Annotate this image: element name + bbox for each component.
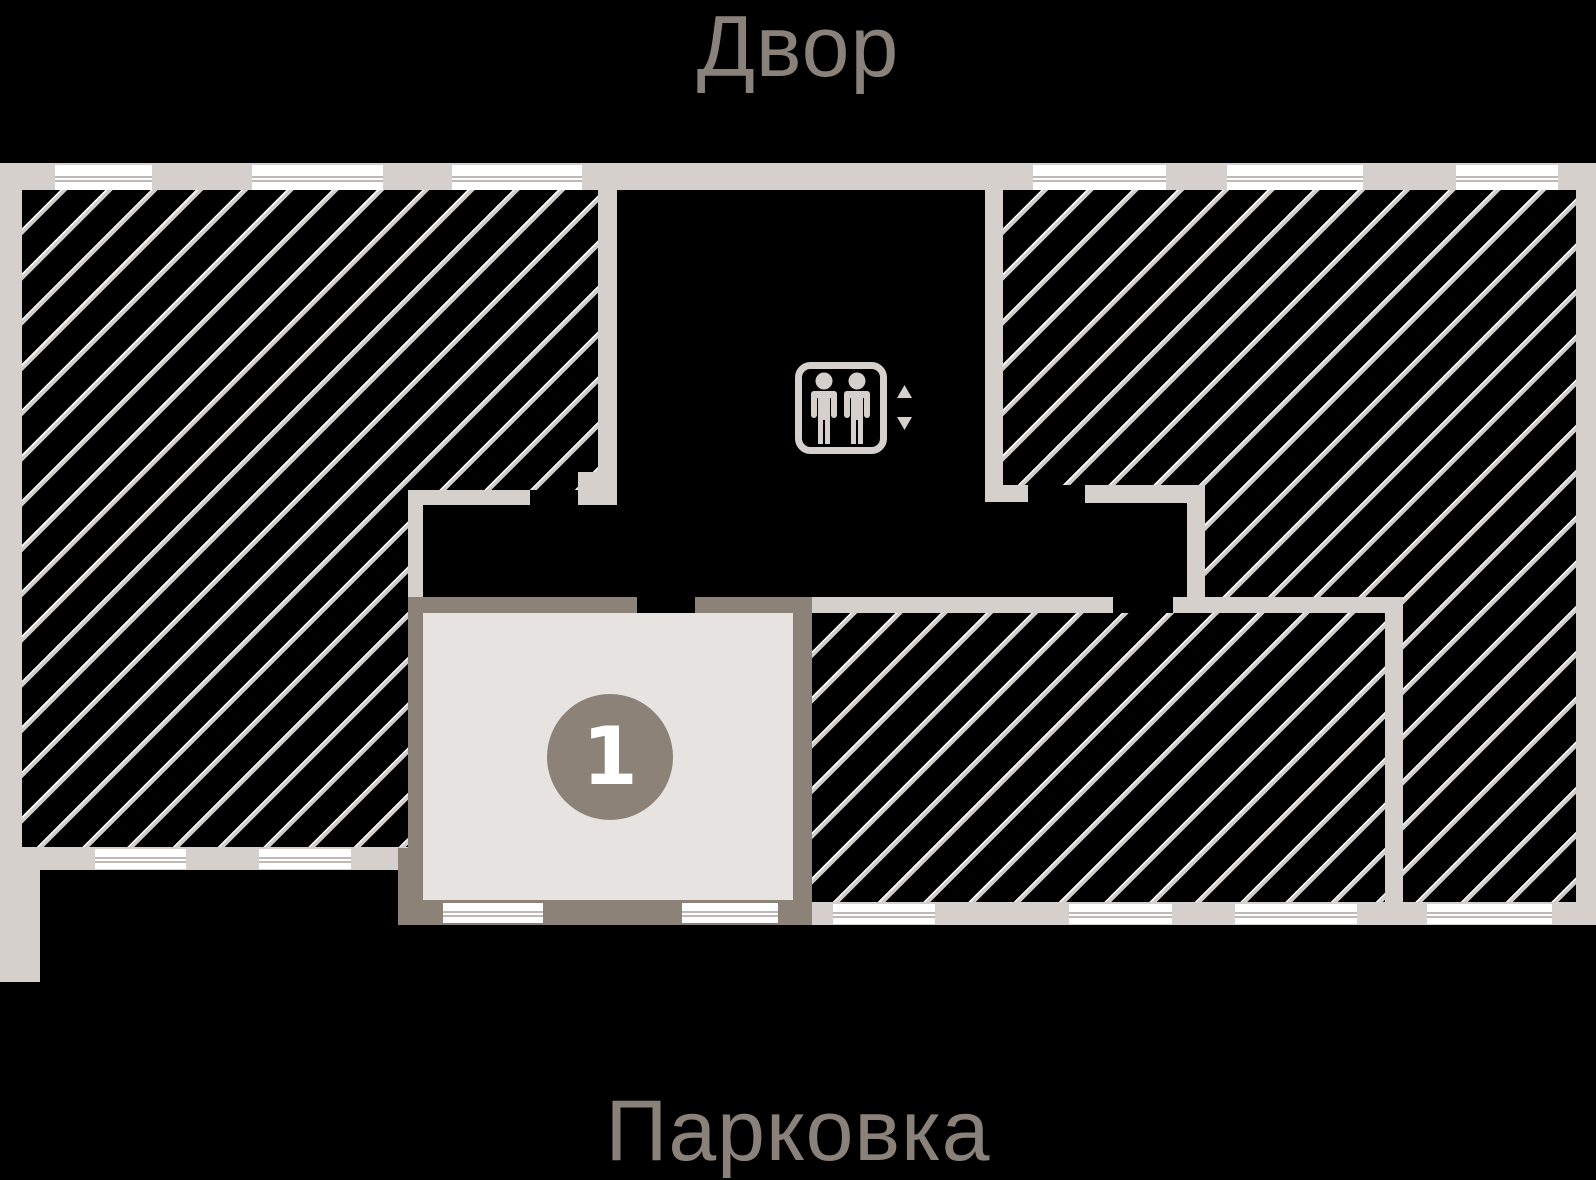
wall-hall-left-vertical bbox=[408, 490, 423, 597]
hatch-region-bottom-unit bbox=[812, 613, 1385, 902]
window bbox=[1235, 904, 1357, 924]
unit-1-wall-left-upper bbox=[408, 597, 423, 848]
unit-1-badge[interactable]: 1 bbox=[547, 694, 673, 820]
wall-bottomroom-divider bbox=[1385, 598, 1403, 902]
elevator-icon bbox=[795, 362, 915, 454]
window bbox=[259, 849, 351, 869]
wall-corridor-right bbox=[985, 163, 1003, 502]
wall-left bbox=[0, 163, 22, 870]
wall-leftroom-door-jamb bbox=[578, 472, 598, 505]
wall-hall-left-horizontal bbox=[408, 490, 530, 505]
person-icon bbox=[811, 373, 837, 445]
unit-1-wall-right bbox=[793, 597, 812, 925]
wall-vestibule-right bbox=[1187, 503, 1205, 597]
courtyard-label: Двор bbox=[0, 4, 1596, 90]
wall-corridor-right-stub bbox=[985, 485, 1028, 502]
wall-vestibule-top bbox=[1085, 485, 1205, 503]
window bbox=[833, 904, 935, 924]
unit-1-wall-top-a bbox=[408, 597, 637, 613]
wall-leftroom-right bbox=[598, 163, 617, 505]
window bbox=[452, 165, 582, 190]
window bbox=[1033, 165, 1166, 190]
floor-plan-view: Двор 1 bbox=[0, 0, 1596, 1180]
unit-1-number: 1 bbox=[582, 717, 638, 797]
window bbox=[1227, 165, 1363, 190]
arrow-down-icon bbox=[897, 417, 912, 430]
window bbox=[1456, 165, 1558, 190]
parking-label: Парковка bbox=[0, 1088, 1596, 1174]
wall-left-stub bbox=[0, 870, 40, 982]
person-icon bbox=[844, 373, 870, 445]
arrow-up-icon bbox=[897, 385, 912, 398]
window bbox=[55, 165, 152, 190]
window bbox=[252, 165, 383, 190]
window bbox=[1427, 904, 1552, 924]
wall-right bbox=[1576, 163, 1596, 925]
window bbox=[443, 903, 543, 923]
wall-bottomroom-top-a bbox=[812, 597, 1113, 613]
window bbox=[1069, 904, 1172, 924]
window bbox=[95, 849, 186, 869]
window bbox=[682, 903, 778, 923]
wall-bottomroom-top-b bbox=[1173, 597, 1403, 613]
